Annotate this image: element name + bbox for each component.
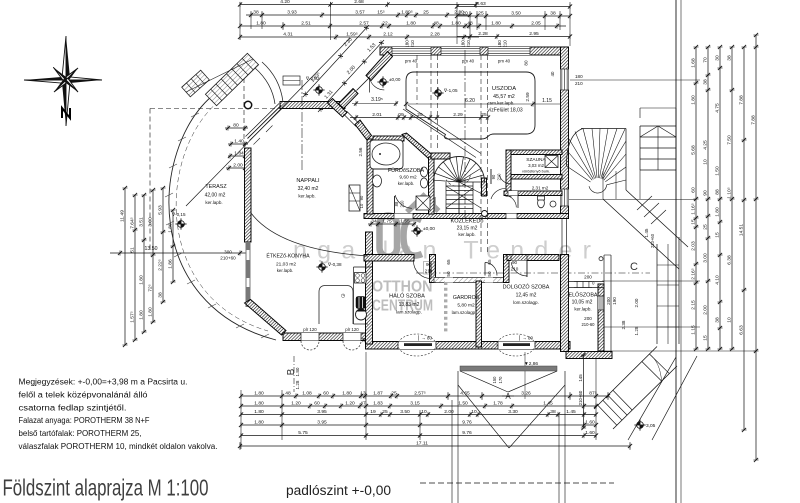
svg-text:70: 70	[702, 57, 708, 63]
svg-text:11.49: 11.49	[119, 210, 125, 222]
svg-text:1.80: 1.80	[147, 307, 153, 317]
svg-text:90: 90	[512, 260, 518, 265]
svg-text:4.75: 4.75	[714, 103, 720, 113]
svg-text:200: 200	[584, 275, 592, 280]
svg-text:1.68: 1.68	[690, 58, 696, 68]
svg-text:38: 38	[157, 292, 163, 298]
svg-text:Földszint alaprajza M 1:100: Földszint alaprajza M 1:100	[3, 475, 209, 501]
svg-text:3.50: 3.50	[511, 10, 521, 16]
svg-text:belső tartófalak: POROTHERM 25: belső tartófalak: POROTHERM 25,	[19, 429, 142, 438]
svg-text:3.00: 3.00	[147, 217, 153, 227]
svg-text:50: 50	[446, 271, 451, 277]
svg-text:13: 13	[360, 390, 366, 396]
svg-text:1.60: 1.60	[585, 419, 595, 425]
svg-text:NAPPALI: NAPPALI	[296, 178, 320, 184]
svg-text:210: 210	[575, 81, 583, 86]
svg-text:2.56: 2.56	[358, 147, 363, 156]
svg-text:∇-1,05: ∇-1,05	[443, 88, 458, 93]
svg-text:ker.lapb.: ker.lapb.	[574, 307, 591, 312]
svg-text:1.80: 1.80	[254, 409, 264, 415]
svg-text:38: 38	[702, 79, 708, 85]
svg-text:2.28: 2.28	[430, 31, 440, 37]
svg-text:5,80 m2: 5,80 m2	[457, 303, 475, 309]
svg-text:200: 200	[584, 316, 592, 321]
svg-text:pm 40: pm 40	[498, 59, 511, 64]
svg-text:1.80: 1.80	[254, 419, 264, 425]
svg-text:1.50: 1.50	[458, 400, 468, 406]
svg-text:ÉTKEZő-KONYHA: ÉTKEZő-KONYHA	[266, 253, 310, 260]
svg-text:pm 40: pm 40	[462, 59, 475, 64]
svg-text:30: 30	[714, 55, 720, 61]
svg-text:3,05: 3,05	[646, 423, 656, 429]
svg-text:90: 90	[359, 195, 364, 200]
svg-text:vörösfenyő burk.: vörösfenyő burk.	[522, 170, 550, 174]
svg-text:pm 40: pm 40	[405, 59, 418, 64]
svg-text:7.64⁵: 7.64⁵	[129, 217, 135, 229]
svg-text:90: 90	[491, 174, 496, 179]
svg-text:38: 38	[550, 409, 556, 415]
svg-text:1.20: 1.20	[291, 400, 301, 406]
svg-text:40: 40	[550, 71, 555, 76]
svg-text:9,60 m2: 9,60 m2	[399, 175, 417, 181]
svg-text:plr 120: plr 120	[303, 327, 317, 332]
svg-text:25: 25	[423, 9, 429, 15]
svg-text:KÖZLEKEDő: KÖZLEKEDő	[451, 218, 484, 225]
svg-text:Falazat anyaga: POROTHERM 38 N: Falazat anyaga: POROTHERM 38 N+F	[19, 416, 150, 425]
svg-text:6.38: 6.38	[726, 255, 732, 265]
svg-text:3.19⁵: 3.19⁵	[371, 97, 383, 103]
svg-text:◷: ◷	[341, 293, 346, 299]
svg-text:10,05 m2: 10,05 m2	[572, 300, 593, 306]
svg-text:2.00: 2.00	[233, 162, 243, 168]
svg-text:9.76: 9.76	[462, 419, 472, 425]
svg-text:10: 10	[421, 409, 427, 415]
svg-text:23,15 m2: 23,15 m2	[457, 226, 478, 232]
svg-text:3.30: 3.30	[508, 409, 518, 415]
svg-text:1.15: 1.15	[542, 98, 552, 104]
svg-text:1.86: 1.86	[167, 259, 173, 269]
svg-text:▏→ 80: ▏→ 80	[417, 336, 432, 341]
svg-text:210+60: 210+60	[578, 390, 583, 405]
svg-text:9.76: 9.76	[462, 430, 472, 436]
svg-text:48: 48	[467, 20, 473, 26]
svg-text:A: A	[505, 392, 511, 401]
svg-text:1.55: 1.55	[400, 218, 410, 224]
svg-text:csatorna fedlap szintjétől.: csatorna fedlap szintjétől.	[19, 403, 127, 412]
svg-text:15: 15	[702, 335, 708, 341]
svg-text:38: 38	[550, 10, 556, 16]
svg-text:plr 120: plr 120	[345, 327, 359, 332]
svg-text:GARDROB: GARDROB	[453, 295, 480, 301]
svg-text:6.63: 6.63	[738, 325, 744, 335]
svg-text:1.45: 1.45	[644, 228, 649, 237]
svg-text:1.80: 1.80	[714, 207, 720, 217]
svg-text:190: 190	[612, 297, 617, 305]
svg-text:210: 210	[400, 200, 405, 208]
svg-text:1.75: 1.75	[382, 218, 392, 224]
svg-text:HÁLÓ SZOBA: HÁLÓ SZOBA	[389, 293, 425, 300]
svg-text:47: 47	[360, 400, 366, 406]
svg-text:60: 60	[690, 187, 696, 193]
svg-text:4.65: 4.65	[460, 390, 470, 396]
svg-text:3.95: 3.95	[317, 409, 327, 415]
svg-text:3.26: 3.26	[521, 390, 531, 396]
svg-text:3.51: 3.51	[138, 217, 144, 227]
svg-text:80: 80	[233, 122, 239, 128]
svg-text:4.25: 4.25	[702, 140, 708, 150]
svg-text:50: 50	[487, 271, 492, 277]
svg-text:2.59: 2.59	[525, 92, 531, 102]
svg-text:10: 10	[471, 409, 477, 415]
svg-text:87⁵: 87⁵	[589, 390, 596, 396]
svg-text:3.95: 3.95	[317, 419, 327, 425]
svg-text:210: 210	[511, 267, 519, 272]
svg-text:10: 10	[726, 317, 732, 323]
svg-text:6.20: 6.20	[465, 98, 475, 104]
svg-text:15: 15	[690, 219, 696, 225]
svg-text:4.10: 4.10	[714, 275, 720, 285]
svg-text:2.00: 2.00	[444, 409, 454, 415]
svg-text:13.50: 13.50	[145, 246, 158, 252]
svg-text:1.83: 1.83	[373, 400, 383, 406]
svg-text:5.93: 5.93	[157, 205, 163, 215]
svg-text:90: 90	[702, 190, 708, 196]
svg-text:2.57: 2.57	[359, 20, 369, 26]
svg-text:2.00: 2.00	[702, 305, 708, 315]
svg-text:Megjegyzések: +-0,00=+3,98 m a: Megjegyzések: +-0,00=+3,98 m a Pacsirta …	[19, 378, 188, 387]
svg-text:180: 180	[575, 74, 583, 79]
svg-text:2.12: 2.12	[383, 31, 393, 37]
svg-text:2.20: 2.20	[458, 10, 468, 16]
svg-text:ker.lapb.: ker.lapb.	[398, 181, 415, 186]
svg-text:210: 210	[497, 173, 502, 181]
svg-text:vízFelület 18,03: vízFelület 18,03	[487, 108, 523, 114]
svg-text:2.28: 2.28	[478, 31, 488, 37]
svg-text:200: 200	[606, 297, 611, 305]
svg-text:32,40 m2: 32,40 m2	[298, 186, 319, 192]
svg-text:1.78: 1.78	[493, 400, 503, 406]
svg-text:3.57: 3.57	[355, 9, 365, 15]
svg-text:7.88: 7.88	[738, 95, 744, 105]
svg-text:17.11: 17.11	[416, 440, 428, 446]
svg-text:▼2,86: ▼2,86	[524, 361, 538, 367]
svg-text:ELŐSZOBA: ELŐSZOBA	[568, 292, 597, 299]
svg-text:∇-0,15: ∇-0,15	[171, 212, 186, 217]
svg-text:∇-0,02: ∇-0,02	[305, 76, 320, 81]
svg-text:25: 25	[478, 10, 484, 16]
svg-text:padlószint +-0,00: padlószint +-0,00	[286, 483, 391, 498]
svg-text:±0,00: ±0,00	[389, 77, 401, 82]
svg-text:felől a telek középvonalánál á: felől a telek középvonalánál álló	[19, 390, 149, 399]
svg-text:C: C	[630, 261, 638, 273]
svg-text:15⁵: 15⁵	[377, 9, 384, 15]
svg-text:48: 48	[285, 390, 291, 396]
svg-text:38: 38	[726, 55, 732, 61]
svg-text:1.80: 1.80	[254, 400, 264, 406]
svg-text:1.80: 1.80	[138, 310, 144, 320]
svg-text:1.60: 1.60	[585, 430, 595, 436]
svg-text:3.00: 3.00	[702, 253, 708, 263]
svg-text:1.80: 1.80	[451, 20, 461, 26]
svg-text:2.01: 2.01	[372, 112, 382, 118]
svg-text:22: 22	[382, 20, 388, 26]
svg-text:45,57 m2: 45,57 m2	[493, 94, 515, 100]
svg-text:145: 145	[578, 374, 583, 382]
svg-text:lom.szolagp.: lom.szolagp.	[513, 300, 539, 305]
svg-text:1.15: 1.15	[690, 325, 696, 335]
svg-text:1.80: 1.80	[254, 390, 264, 396]
svg-text:▏→ 80: ▏→ 80	[518, 336, 533, 341]
svg-text:1.80: 1.80	[342, 390, 352, 396]
svg-text:88: 88	[394, 201, 399, 206]
svg-text:1.80: 1.80	[406, 20, 416, 26]
svg-text:80: 80	[524, 60, 529, 66]
svg-text:72⁵: 72⁵	[147, 284, 153, 291]
svg-text:150: 150	[492, 376, 497, 384]
svg-text:1.28: 1.28	[634, 326, 639, 335]
svg-text:210-60: 210-60	[581, 322, 595, 327]
svg-text:1.80: 1.80	[690, 95, 696, 105]
svg-text:90: 90	[426, 262, 432, 267]
svg-text:3.50: 3.50	[400, 409, 410, 415]
svg-text:2.16⁵: 2.16⁵	[690, 268, 696, 280]
svg-text:88: 88	[714, 189, 720, 195]
svg-text:210: 210	[425, 269, 433, 274]
svg-text:300: 300	[224, 250, 232, 255]
svg-text:10: 10	[702, 159, 708, 165]
svg-text:4.31: 4.31	[283, 31, 293, 37]
svg-text:14.51: 14.51	[738, 224, 744, 237]
svg-text:1.10⁵: 1.10⁵	[726, 187, 732, 199]
svg-text:1.20: 1.20	[345, 400, 355, 406]
svg-text:38: 38	[253, 9, 259, 15]
svg-text:2.57⁵: 2.57⁵	[414, 390, 426, 396]
svg-text:2.03: 2.03	[690, 241, 696, 251]
svg-text:∇-0,38: ∇-0,38	[327, 262, 342, 267]
svg-text:ker.lapb.: ker.lapb.	[298, 194, 315, 199]
svg-text:65: 65	[446, 259, 451, 265]
svg-text:2.95: 2.95	[529, 31, 539, 37]
svg-text:5.75: 5.75	[298, 430, 308, 436]
svg-text:±0,00: ±0,00	[423, 226, 435, 232]
svg-text:13,83 m2: 13,83 m2	[399, 302, 420, 308]
svg-text:válaszfalak POROTHERM 10, mind: válaszfalak POROTHERM 10, mindkét oldalo…	[19, 442, 218, 451]
svg-text:15: 15	[714, 232, 720, 238]
svg-text:09: 09	[398, 112, 404, 118]
svg-text:lam.szolagp.: lam.szolagp.	[452, 310, 477, 315]
svg-text:48: 48	[433, 20, 439, 26]
svg-text:25: 25	[702, 224, 708, 230]
svg-text:170: 170	[498, 376, 503, 384]
svg-text:2.15: 2.15	[690, 300, 696, 310]
svg-text:210+60: 210+60	[650, 233, 655, 248]
svg-text:34: 34	[371, 218, 377, 224]
svg-text:USZODA: USZODA	[492, 86, 516, 92]
svg-text:ker.lapb.: ker.lapb.	[205, 200, 222, 205]
svg-text:4.20: 4.20	[280, 0, 290, 5]
svg-text:3,03 m2: 3,03 m2	[528, 163, 544, 168]
svg-text:3.15: 3.15	[410, 400, 420, 406]
svg-text:12,45 m2: 12,45 m2	[516, 293, 537, 299]
svg-text:25: 25	[382, 409, 388, 415]
svg-text:2.05: 2.05	[531, 20, 541, 26]
svg-text:3.93: 3.93	[287, 9, 297, 15]
svg-text:1.89⁵: 1.89⁵	[401, 9, 413, 15]
svg-text:19: 19	[370, 409, 376, 415]
svg-text:38: 38	[714, 317, 720, 323]
svg-text:1.08: 1.08	[302, 390, 312, 396]
svg-text:25: 25	[481, 112, 487, 118]
svg-text:1.80: 1.80	[491, 20, 501, 26]
svg-text:10: 10	[359, 203, 364, 208]
svg-text:2.00: 2.00	[634, 298, 639, 307]
svg-text:21,03 m2: 21,03 m2	[276, 262, 296, 268]
svg-text:1.45: 1.45	[543, 400, 553, 406]
svg-text:1.40: 1.40	[234, 138, 244, 144]
svg-text:210+60: 210+60	[220, 256, 236, 261]
svg-text:42,00 m2: 42,00 m2	[205, 193, 226, 199]
svg-text:2,31 m2: 2,31 m2	[532, 186, 549, 191]
svg-text:7.50: 7.50	[726, 135, 732, 145]
svg-text:1.16⁵: 1.16⁵	[690, 203, 696, 215]
svg-text:1.45: 1.45	[566, 409, 576, 415]
svg-text:1.80: 1.80	[138, 275, 144, 285]
svg-text:1.80: 1.80	[256, 20, 266, 26]
svg-text:2.38: 2.38	[621, 320, 626, 329]
svg-text:51: 51	[129, 247, 135, 253]
svg-text:2.68: 2.68	[354, 0, 364, 5]
svg-text:1.80: 1.80	[295, 367, 300, 376]
svg-text:2.29: 2.29	[453, 112, 463, 118]
svg-text:1.87: 1.87	[373, 390, 383, 396]
svg-text:ker.lapb.: ker.lapb.	[458, 232, 475, 237]
svg-text:60: 60	[323, 390, 329, 396]
svg-text:FÜRDőSZOBA: FÜRDőSZOBA	[388, 167, 425, 174]
svg-text:ker.lapb.: ker.lapb.	[277, 268, 294, 273]
svg-text:1.50: 1.50	[714, 166, 720, 176]
svg-text:5.68: 5.68	[690, 145, 696, 155]
svg-text:25: 25	[391, 390, 397, 396]
svg-text:1.57⁵: 1.57⁵	[129, 311, 135, 323]
svg-text:7.88: 7.88	[750, 115, 756, 125]
svg-text:8.63: 8.63	[476, 1, 486, 7]
svg-text:2.51: 2.51	[301, 20, 311, 26]
svg-text:1.59⁵: 1.59⁵	[346, 31, 358, 37]
svg-text:DOLGOZÓ SZOBA: DOLGOZÓ SZOBA	[503, 284, 550, 291]
svg-text:csm.ker.lapb.: csm.ker.lapb.	[487, 101, 514, 106]
svg-text:2.22⁵: 2.22⁵	[157, 259, 163, 271]
svg-text:1.28: 1.28	[295, 380, 300, 389]
svg-text:lam.szolagp.: lam.szolagp.	[396, 310, 422, 315]
svg-text:TERASZ: TERASZ	[205, 184, 227, 190]
svg-text:60: 60	[314, 400, 320, 406]
